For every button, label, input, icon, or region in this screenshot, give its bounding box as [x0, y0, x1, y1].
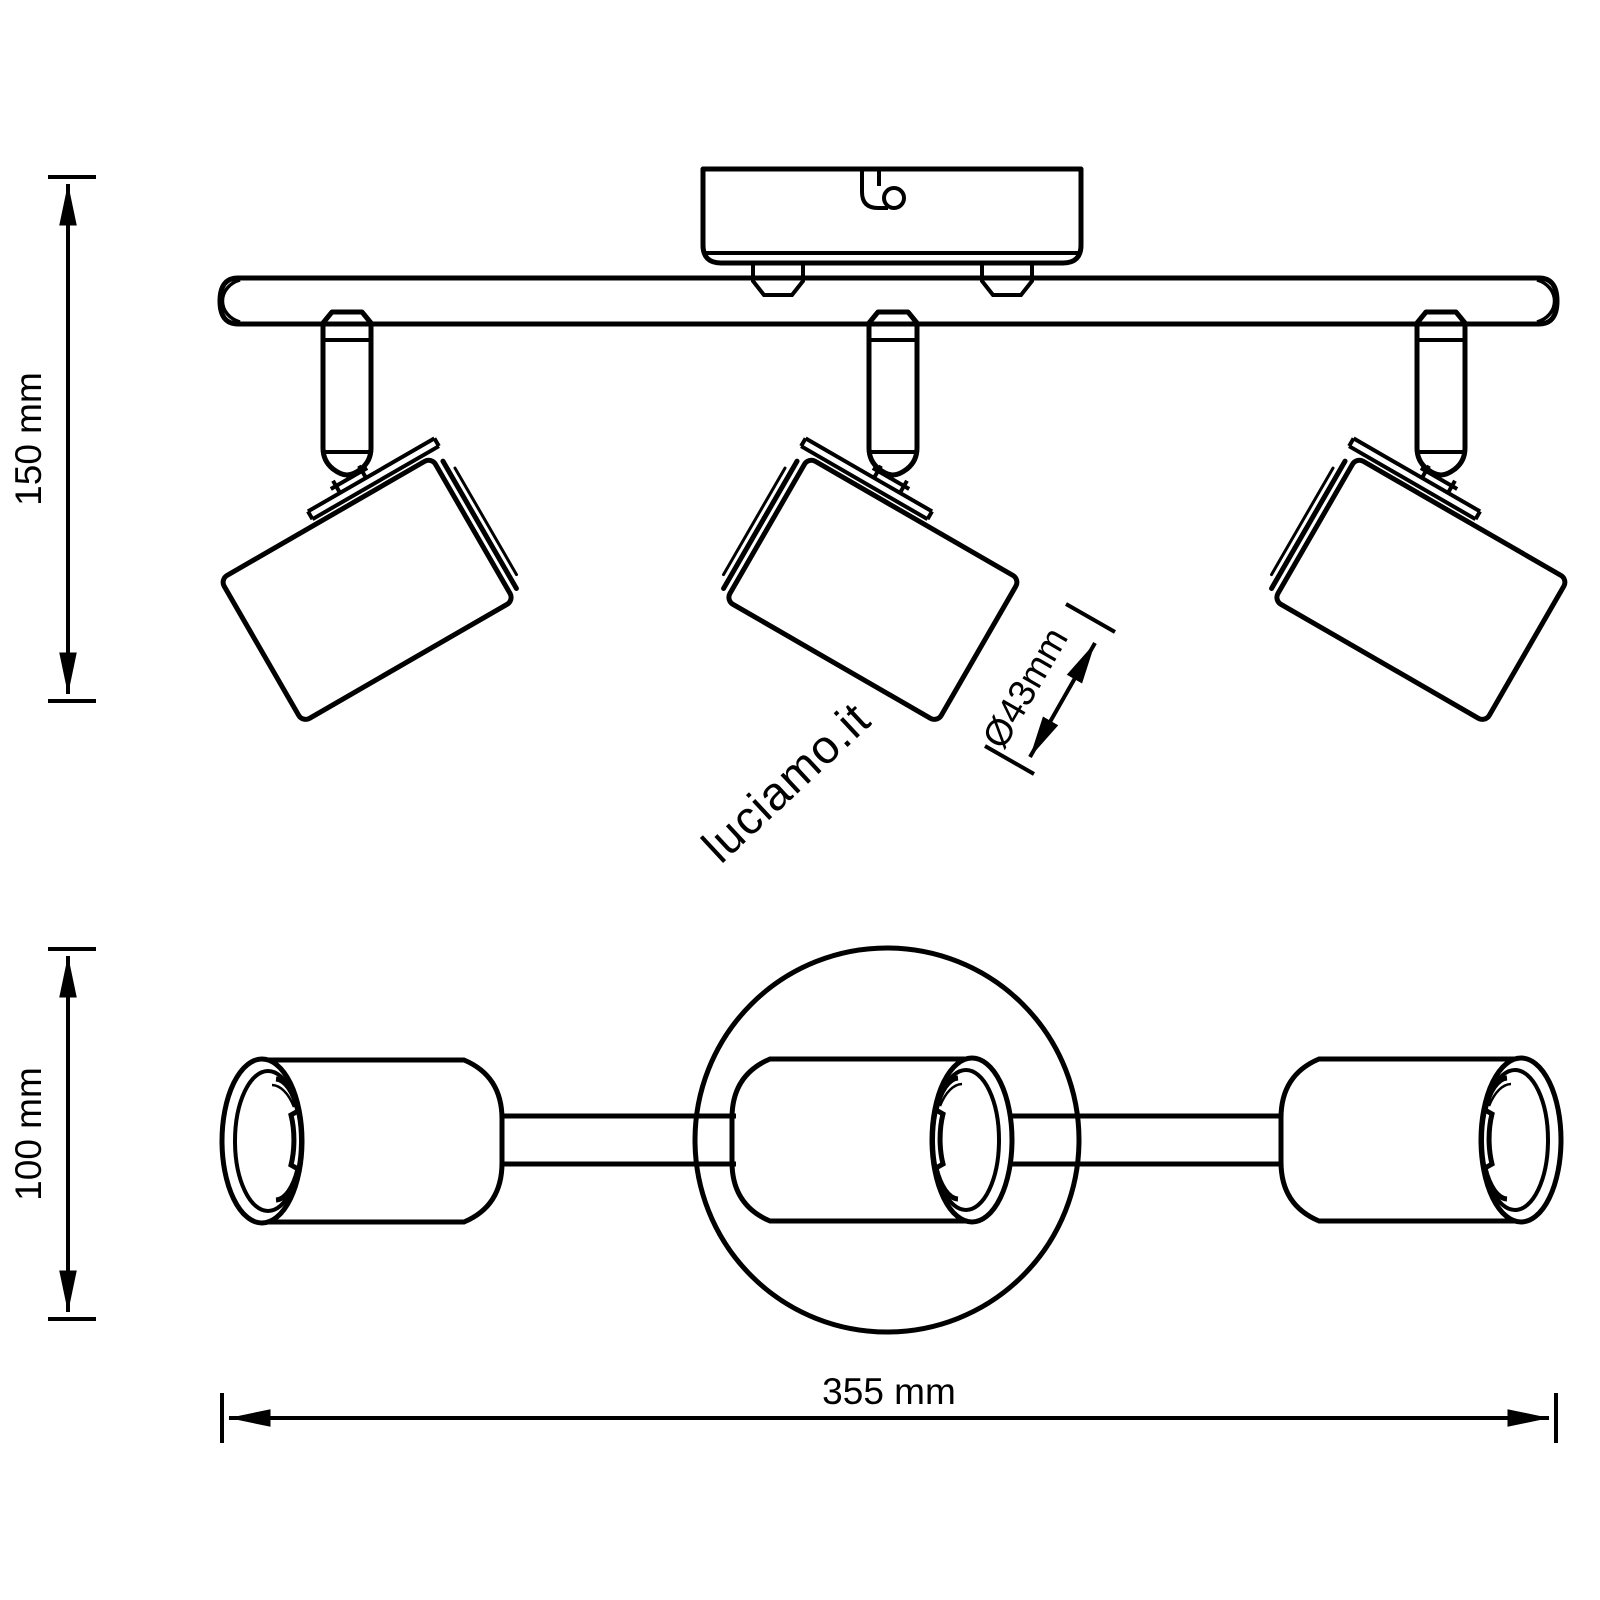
- spot-cylinder-middle: [732, 1058, 1012, 1222]
- dimension-width-355: 355 mm: [222, 1371, 1556, 1443]
- keyhole-slot: [862, 169, 904, 208]
- dimension-depth-100: 100 mm: [8, 949, 96, 1319]
- spot-head-1: [206, 425, 527, 723]
- spotlight-technical-drawing: luciamo.it: [0, 0, 1600, 1600]
- stem-3: [1417, 312, 1465, 475]
- dimension-height-150: 150 mm: [8, 177, 96, 701]
- ceiling-bar: [220, 278, 1557, 324]
- technical-drawing-page: luciamo.it: [0, 0, 1600, 1600]
- width-dimension-label: 355 mm: [822, 1371, 956, 1412]
- dimension-head-diameter: Ø43mm: [975, 604, 1115, 774]
- bar-bottom-view: [500, 1116, 1281, 1164]
- mounting-canopy: [703, 169, 1081, 263]
- spot-cylinder-left: [222, 1059, 502, 1223]
- bottom-view: [222, 948, 1561, 1332]
- stem-2: [869, 312, 917, 475]
- spot-head-3: [1261, 425, 1582, 723]
- spot-head-2: [713, 425, 1034, 723]
- watermark-text: luciamo.it: [691, 691, 880, 872]
- stem-1: [323, 312, 371, 475]
- height-dimension-label: 150 mm: [8, 372, 49, 506]
- front-view: Ø43mm: [206, 169, 1583, 774]
- spot-cylinder-right: [1281, 1058, 1561, 1222]
- depth-dimension-label: 100 mm: [8, 1067, 49, 1201]
- canopy-circle: [695, 948, 1079, 1332]
- head-diameter-label: Ø43mm: [975, 621, 1076, 755]
